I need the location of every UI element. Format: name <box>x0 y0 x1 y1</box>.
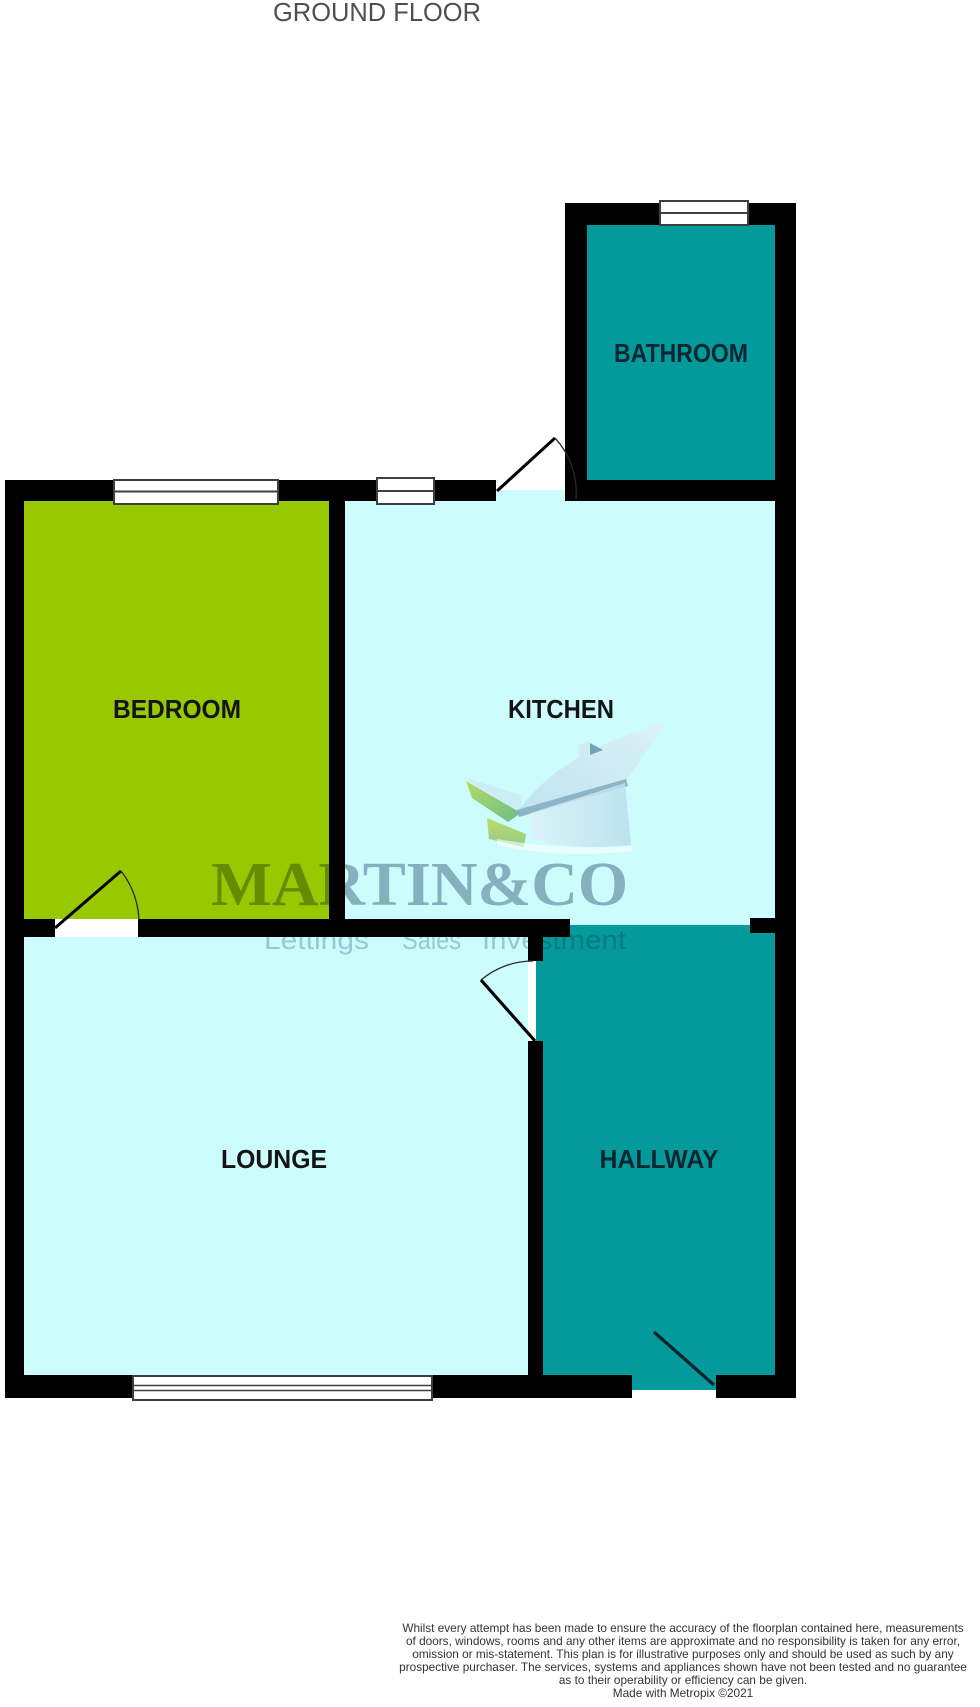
svg-text:BEDROOM: BEDROOM <box>113 694 241 724</box>
svg-text:Lettings: Lettings <box>264 925 369 955</box>
svg-text:KITCHEN: KITCHEN <box>508 694 614 724</box>
svg-text:GROUND FLOOR: GROUND FLOOR <box>273 0 481 27</box>
svg-text:Investment: Investment <box>482 925 627 955</box>
svg-text:BATHROOM: BATHROOM <box>614 338 748 368</box>
svg-text:MARTIN&CO: MARTIN&CO <box>211 851 628 919</box>
svg-text:Sales: Sales <box>402 925 461 955</box>
svg-text:LOUNGE: LOUNGE <box>221 1144 327 1174</box>
svg-text:HALLWAY: HALLWAY <box>600 1144 719 1174</box>
